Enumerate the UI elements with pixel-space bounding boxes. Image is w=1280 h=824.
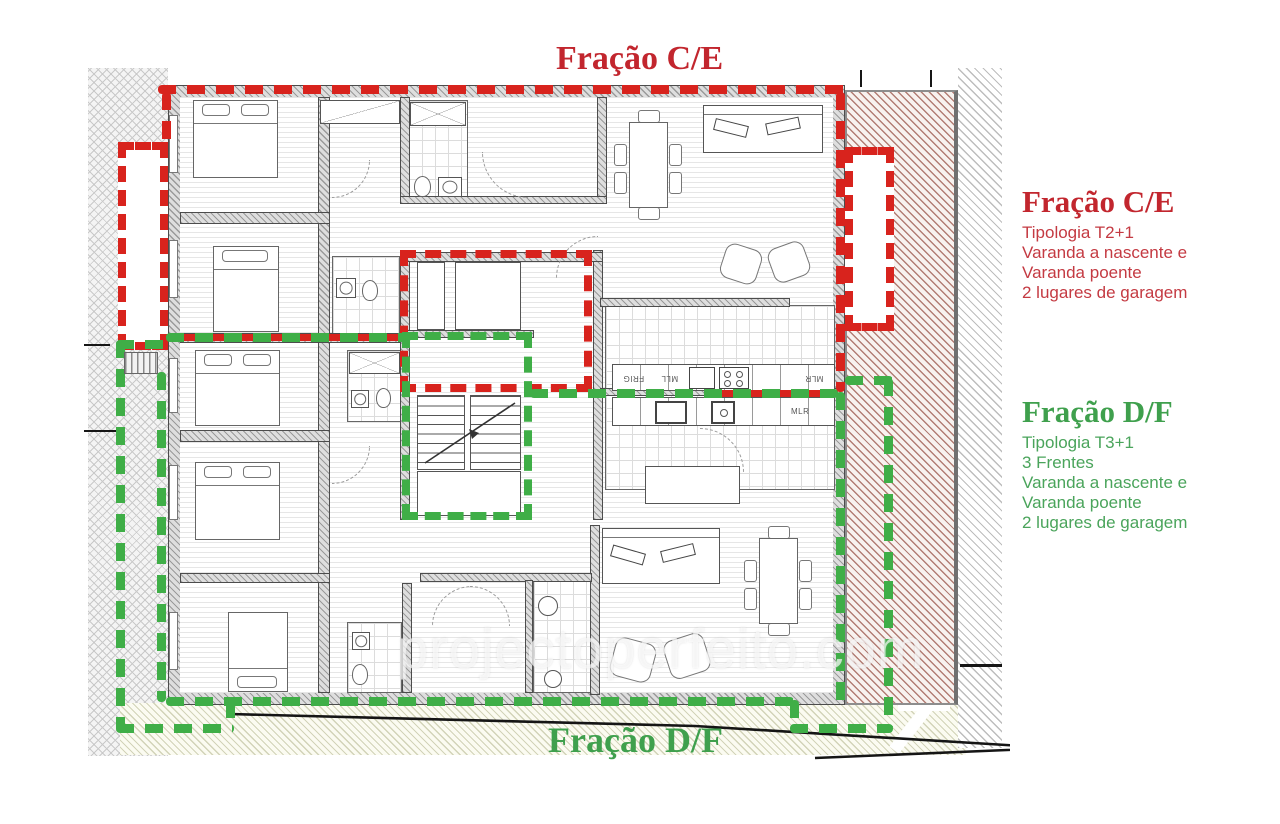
balcony-df-west-outer xyxy=(116,340,125,732)
wall-bedroom-column xyxy=(318,97,330,693)
legend-ce-line-4: 2 lugares de garagem xyxy=(1022,283,1262,303)
boundary-df-kitchen-divider xyxy=(530,389,838,398)
fraction-df-plan-title: Fração D/F xyxy=(548,722,723,758)
exterior-steps xyxy=(124,352,158,374)
sofa-df xyxy=(602,528,720,584)
balcony-df-sw-bottom xyxy=(116,724,234,733)
wall-kitchen-ce-top xyxy=(600,298,790,307)
window-bed4 xyxy=(169,465,178,520)
survey-tick-1 xyxy=(860,70,862,87)
boundary-ce-top xyxy=(158,85,848,94)
survey-tick-4 xyxy=(84,430,118,432)
shower-drain-df3 xyxy=(538,596,558,616)
survey-tick-5 xyxy=(960,664,1002,667)
legend-ce-line-3: Varanda poente xyxy=(1022,263,1262,283)
sofa-ce xyxy=(703,105,823,153)
fraction-ce-plan-title: Fração C/E xyxy=(556,42,723,76)
bed-4 xyxy=(195,462,280,540)
legend-ce-line-1: Tipologia T2+1 xyxy=(1022,223,1262,243)
watermark: projectoperfeito.com xyxy=(397,616,924,681)
balcony-ce-west xyxy=(118,142,168,350)
balcony-ce-east xyxy=(845,147,894,331)
legend-df-line-4: Varanda poente xyxy=(1022,493,1262,513)
floor-plan: FRIG MLL MLR MLR xyxy=(0,0,1280,824)
kitchen-ce-counter: FRIG MLL MLR xyxy=(612,364,835,391)
boundary-df-bottom xyxy=(166,697,794,706)
sink-df2 xyxy=(352,632,370,650)
boundary-df-divider-left xyxy=(166,333,411,342)
legend-df-title: Fração D/F xyxy=(1022,396,1262,429)
shower-ce xyxy=(410,102,466,126)
stove xyxy=(719,367,749,389)
legend-df-line-1: Tipologia T3+1 xyxy=(1022,433,1262,453)
legend-df-line-2: 3 Frentes xyxy=(1022,453,1262,473)
fridge-label: FRIG xyxy=(623,374,644,382)
wall-hall-right xyxy=(597,97,607,203)
site-strip-right xyxy=(958,68,1002,748)
wc-df2 xyxy=(352,664,368,685)
balcony-df-west-inner xyxy=(157,372,166,702)
bed-5 xyxy=(228,612,288,692)
wc-ce2 xyxy=(362,280,378,301)
closet-top xyxy=(320,100,400,124)
balcony-df-west-top xyxy=(116,340,166,349)
mlr-ce-label: MLR xyxy=(805,374,823,382)
window-bed2 xyxy=(169,240,178,298)
wall-corridor-bottom xyxy=(420,573,592,582)
wc-ce xyxy=(414,176,431,197)
survey-tick-2 xyxy=(930,70,932,87)
kitchen-ce-sink xyxy=(689,367,715,389)
balcony-df-east-top xyxy=(845,376,893,385)
sink-ce2 xyxy=(336,278,356,298)
wall-bed1-bed2 xyxy=(180,212,330,224)
legend-fraction-df: Fração D/F Tipologia T3+1 3 Frentes Vara… xyxy=(1022,396,1262,533)
coffee-machine xyxy=(711,401,735,424)
window-bed3 xyxy=(169,358,178,413)
kitchen-df-sink xyxy=(655,401,687,424)
bed-3 xyxy=(195,350,280,426)
shower-df xyxy=(349,352,400,374)
boundary-df-stair-core xyxy=(402,332,532,520)
balcony-df-east-bottom xyxy=(790,724,893,733)
mll-label: MLL xyxy=(661,374,678,382)
legend-fraction-ce: Fração C/E Tipologia T2+1 Varanda a nasc… xyxy=(1022,186,1262,303)
legend-ce-line-2: Varanda a nascente e xyxy=(1022,243,1262,263)
wall-bed3-bed4 xyxy=(180,430,330,442)
bed-2 xyxy=(213,246,279,332)
legend-df-line-3: Varanda a nascente e xyxy=(1022,473,1262,493)
bed-1 xyxy=(193,100,278,178)
window-bed5 xyxy=(169,612,178,670)
legend-ce-title: Fração C/E xyxy=(1022,186,1262,219)
wall-hall-bottom xyxy=(400,196,607,204)
sink-df xyxy=(351,390,369,408)
sink-ce xyxy=(438,177,462,197)
balcony-df-sw-return xyxy=(226,700,235,728)
wall-bath-ce-left xyxy=(400,97,410,201)
kitchen-df-counter: MLR xyxy=(612,397,835,426)
wall-bed4-bed5 xyxy=(180,573,330,583)
mlr-df-label: MLR xyxy=(791,408,809,416)
dining-set-ce xyxy=(612,110,684,220)
survey-tick-3 xyxy=(84,344,110,346)
boundary-ce-right xyxy=(836,92,845,392)
wc-df xyxy=(376,388,391,408)
legend-df-line-5: 2 lugares de garagem xyxy=(1022,513,1262,533)
wall-stair-right xyxy=(593,250,603,520)
